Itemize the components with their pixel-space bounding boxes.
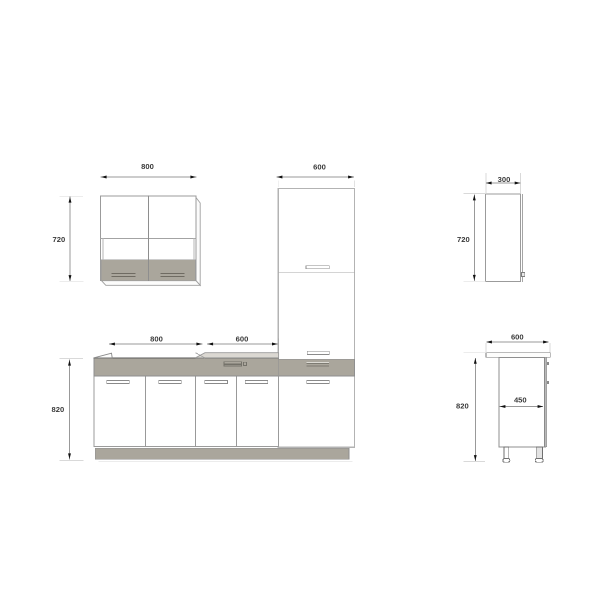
svg-text:600: 600 bbox=[313, 162, 326, 171]
svg-text:800: 800 bbox=[141, 162, 154, 171]
svg-text:800: 800 bbox=[150, 334, 163, 343]
svg-text:720: 720 bbox=[53, 235, 66, 244]
svg-text:820: 820 bbox=[52, 405, 65, 414]
svg-text:300: 300 bbox=[498, 175, 511, 184]
svg-text:600: 600 bbox=[236, 334, 249, 343]
svg-text:600: 600 bbox=[511, 333, 524, 342]
svg-text:820: 820 bbox=[456, 401, 469, 410]
svg-text:450: 450 bbox=[514, 395, 527, 404]
svg-text:720: 720 bbox=[457, 235, 470, 244]
